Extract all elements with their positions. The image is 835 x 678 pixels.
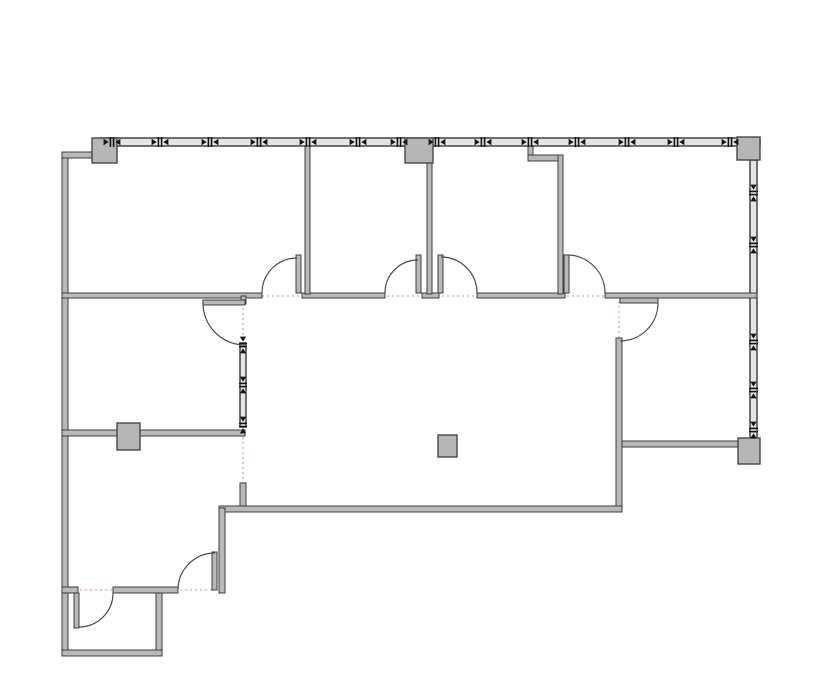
- office2-door-leaf: [416, 255, 421, 293]
- window-mullion: [677, 137, 679, 147]
- corridor-wall-seg-2: [302, 293, 385, 298]
- window-mullion: [578, 137, 580, 147]
- floor-plan-page: [0, 0, 835, 678]
- window-mullion: [239, 343, 247, 345]
- lobby-south-wall: [219, 506, 622, 512]
- corridor-wall-seg-1: [62, 293, 262, 298]
- office4-door-swing: [567, 255, 605, 293]
- window-mullion: [749, 388, 758, 390]
- window-mullion: [239, 426, 247, 428]
- west-midroom-door-leaf: [203, 300, 245, 305]
- window-mullion: [211, 137, 213, 147]
- window-mullion: [110, 137, 112, 147]
- southwest-room-door-swing: [178, 553, 215, 590]
- window-mullion: [239, 386, 247, 388]
- window-mullion: [356, 137, 358, 147]
- divider-office2-office3: [427, 158, 432, 294]
- corridor-wall-seg-4: [477, 293, 565, 298]
- window-mullion: [208, 137, 210, 147]
- window-mullion: [749, 343, 758, 345]
- entry-room-door-swing: [79, 593, 113, 627]
- window-mullion: [531, 137, 533, 147]
- window-mullion: [749, 431, 758, 433]
- window-mullion: [749, 340, 758, 342]
- window-mullion: [158, 137, 160, 147]
- floor-plan-canvas: [0, 0, 835, 678]
- window-mullion: [309, 137, 311, 147]
- window-mullion: [239, 423, 247, 425]
- window-mullion: [728, 137, 730, 147]
- office2-door-swing: [385, 260, 418, 293]
- window-mullion: [306, 137, 308, 147]
- window-mullion: [400, 137, 402, 147]
- southeast-room-door-leaf: [620, 298, 658, 303]
- window-mullion: [749, 191, 758, 193]
- window-mullion: [749, 243, 758, 245]
- northwest-wall-stub: [62, 152, 92, 158]
- office1-door-swing: [262, 258, 297, 293]
- west-exterior-wall: [62, 152, 68, 656]
- column-lobby-center: [438, 435, 457, 457]
- window-mullion: [484, 137, 486, 147]
- lobby-glazed-partition: [240, 343, 246, 427]
- window-mullion: [731, 137, 733, 147]
- lobby-west-wall-lower: [240, 483, 246, 508]
- window-mullion: [628, 137, 630, 147]
- window-mullion: [749, 391, 758, 393]
- southeast-room-door-swing: [620, 303, 658, 341]
- window-mullion: [257, 137, 259, 147]
- window-mullion: [239, 383, 247, 385]
- office3-door-leaf: [438, 255, 443, 293]
- entry-room-south-wall: [62, 650, 162, 656]
- west-midroom-south-wall: [62, 430, 245, 436]
- window-mullion: [359, 137, 361, 147]
- column-west-middle: [117, 423, 140, 450]
- window-mullion: [161, 137, 163, 147]
- corridor-wall-seg-5: [605, 293, 757, 298]
- entry-room-east-wall: [156, 593, 162, 650]
- office4-door-leaf: [564, 255, 569, 293]
- window-mullion: [625, 137, 627, 147]
- window-mullion: [113, 137, 115, 147]
- southeast-room-south-wall: [622, 441, 742, 447]
- divider-office1-office2: [305, 146, 310, 294]
- window-mullion: [481, 137, 483, 147]
- column-east-south: [738, 438, 760, 464]
- window-mullion: [674, 137, 676, 147]
- office3-door-swing: [441, 257, 477, 293]
- window-mullion: [260, 137, 262, 147]
- southwest-room-south-wall-seg: [113, 587, 178, 593]
- window-mullion: [438, 137, 440, 147]
- window-mullion: [239, 346, 247, 348]
- entry-room-door-leaf: [74, 593, 79, 628]
- window-mullion: [749, 428, 758, 430]
- window-mullion: [240, 337, 246, 342]
- window-mullion: [397, 137, 399, 147]
- window-mullion: [749, 194, 758, 196]
- window-mullion: [749, 246, 758, 248]
- southwest-wall-stub: [62, 587, 78, 593]
- southwest-room-door-leaf: [212, 552, 217, 590]
- southwest-room-east-wall: [219, 508, 225, 593]
- lobby-east-wall: [616, 338, 622, 508]
- office1-door-leaf: [296, 255, 301, 293]
- divider-office3-office4: [558, 155, 563, 294]
- window-mullion: [575, 137, 577, 147]
- window-mullion: [435, 137, 437, 147]
- column-northeast: [737, 137, 760, 160]
- window-mullion: [528, 137, 530, 147]
- west-midroom-door-swing: [203, 303, 245, 345]
